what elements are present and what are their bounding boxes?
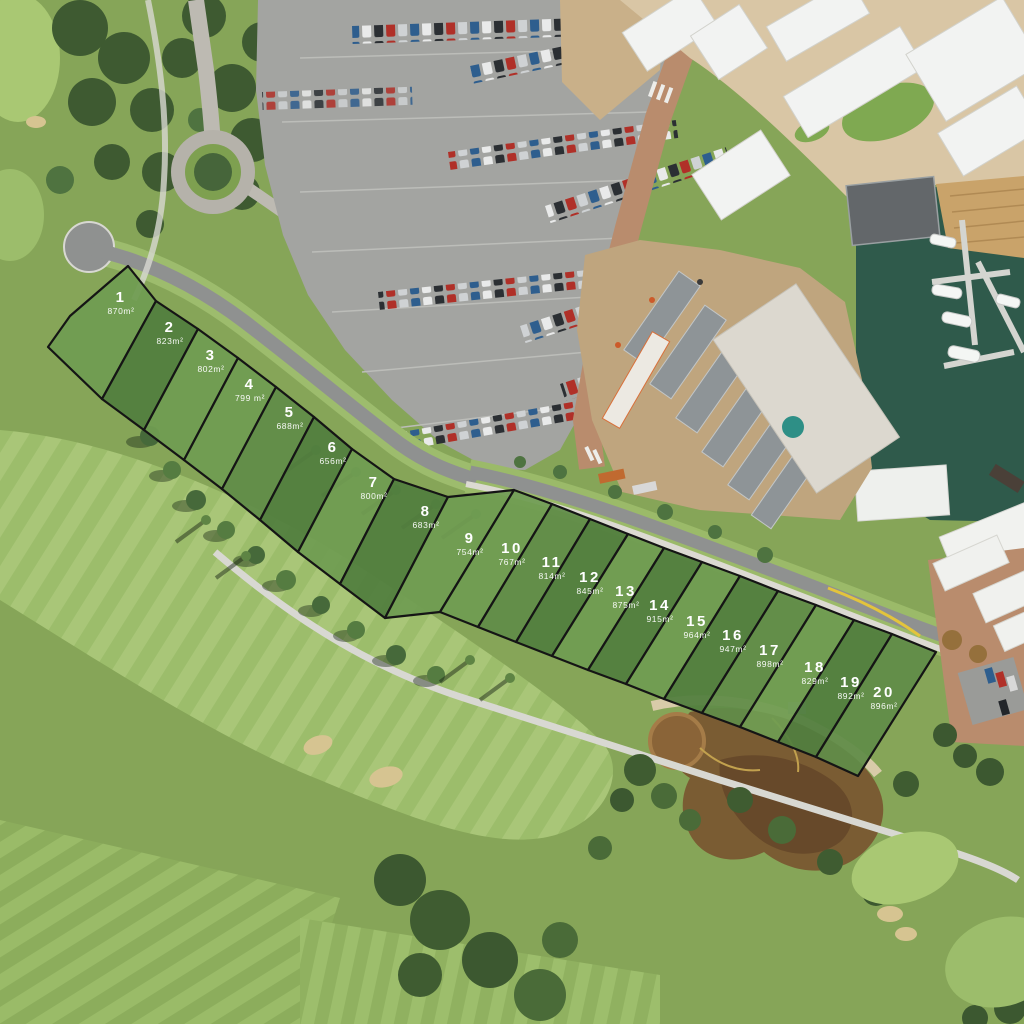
lot-area-10: 767m²: [498, 557, 525, 567]
lot-number-2: 2: [165, 319, 176, 336]
lot-area-19: 892m²: [837, 691, 864, 701]
lot-area-9: 754m²: [456, 547, 483, 557]
lot-number-19: 19: [840, 674, 862, 691]
shade-sail: [782, 416, 804, 438]
lot-area-17: 898m²: [756, 659, 783, 669]
lot-area-13: 875m²: [612, 600, 639, 610]
lot-area-1: 870m²: [107, 306, 134, 316]
lot-number-7: 7: [369, 474, 380, 491]
lot-number-14: 14: [649, 597, 671, 614]
lot-number-8: 8: [421, 503, 432, 520]
lot-number-4: 4: [245, 376, 256, 393]
lot-number-5: 5: [285, 404, 296, 421]
lot-number-17: 17: [759, 642, 781, 659]
lot-number-18: 18: [804, 659, 826, 676]
lot-area-2: 823m²: [156, 336, 183, 346]
lot-area-15: 964m²: [683, 630, 710, 640]
aerial-photo-scene: 1870m²2823m²3802m²4799 m²5688m²6656m²780…: [0, 0, 1024, 1024]
lot-area-6: 656m²: [319, 456, 346, 466]
lot-number-11: 11: [542, 554, 563, 571]
lot-area-14: 915m²: [646, 614, 673, 624]
lot-area-5: 688m²: [276, 421, 303, 431]
lot-number-20: 20: [873, 684, 895, 701]
lot-number-6: 6: [328, 439, 339, 456]
lot-area-4: 799 m²: [235, 393, 265, 403]
lot-area-7: 800m²: [360, 491, 387, 501]
lot-area-16: 947m²: [719, 644, 746, 654]
lot-number-9: 9: [465, 530, 476, 547]
lot-area-20: 896m²: [870, 701, 897, 711]
lot-number-3: 3: [206, 347, 217, 364]
lot-area-12: 845m²: [576, 586, 603, 596]
lot-number-1: 1: [116, 289, 127, 306]
lot-number-15: 15: [686, 613, 708, 630]
aerial-masterplan: 1870m²2823m²3802m²4799 m²5688m²6656m²780…: [0, 0, 1024, 1024]
lot-area-3: 802m²: [197, 364, 224, 374]
lot-area-8: 683m²: [412, 520, 439, 530]
gray-roof-building: [846, 177, 940, 246]
lot-number-10: 10: [501, 540, 523, 557]
lot-number-13: 13: [615, 583, 637, 600]
lot-number-16: 16: [722, 627, 744, 644]
lot-area-11: 814m²: [538, 571, 565, 581]
lot-number-12: 12: [579, 569, 601, 586]
lot-area-18: 829m²: [801, 676, 828, 686]
